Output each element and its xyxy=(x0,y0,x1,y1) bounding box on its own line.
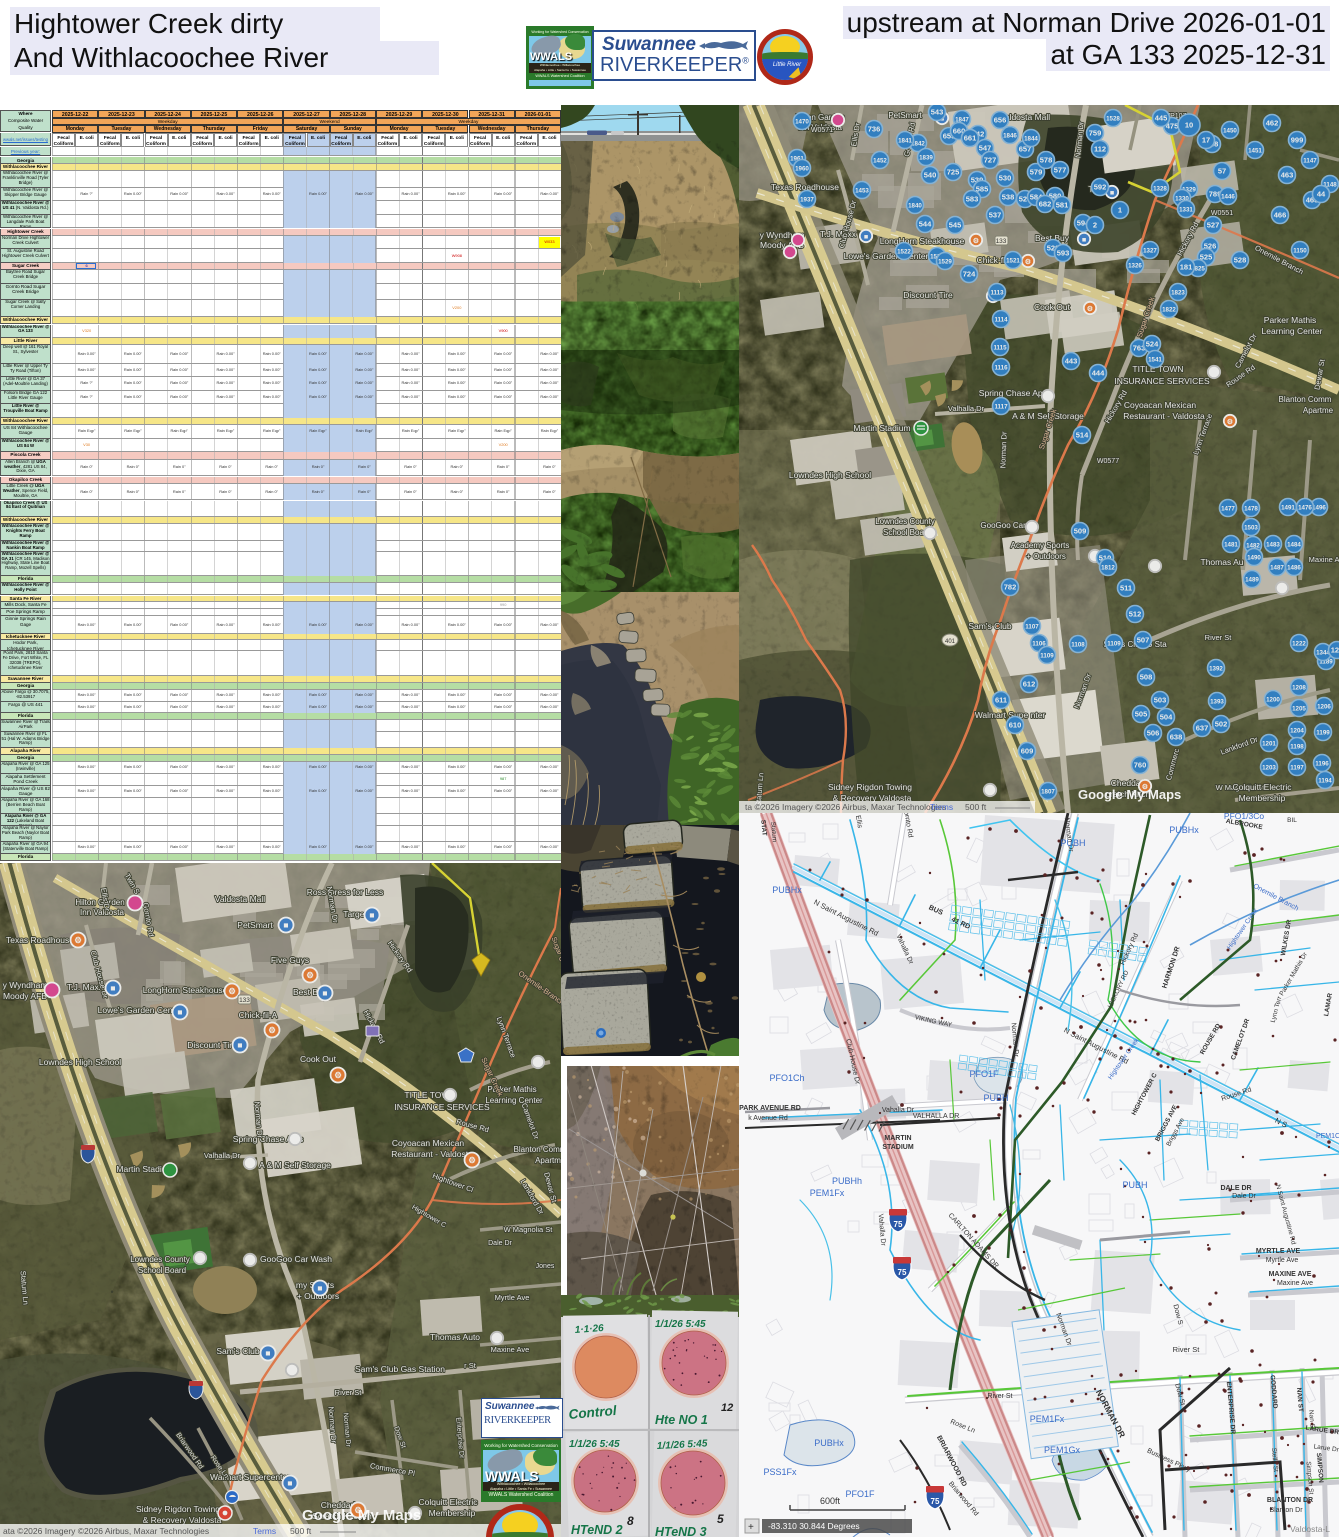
svg-text:Hte NO 1: Hte NO 1 xyxy=(655,1413,708,1427)
svg-text:PUBHh: PUBHh xyxy=(832,1176,862,1186)
svg-text:-83.310 30.844 Degrees: -83.310 30.844 Degrees xyxy=(768,1521,860,1531)
svg-text:Google My Maps: Google My Maps xyxy=(1078,787,1181,802)
svg-text:1/1/26 5:45: 1/1/26 5:45 xyxy=(655,1319,706,1330)
svg-text:STAT: STAT xyxy=(759,820,767,837)
svg-text:500 ft: 500 ft xyxy=(290,1526,312,1536)
svg-text:Terms: Terms xyxy=(253,1526,276,1536)
svg-text:BLANTON DR: BLANTON DR xyxy=(1267,1497,1313,1504)
svg-text:BIL: BIL xyxy=(1287,817,1297,824)
svg-text:k Avenue Rd: k Avenue Rd xyxy=(748,1115,788,1122)
svg-text:STADIUM: STADIUM xyxy=(882,1144,914,1151)
svg-text:500 ft: 500 ft xyxy=(965,802,987,812)
svg-text:Blanton Dr: Blanton Dr xyxy=(1269,1507,1303,1514)
svg-text:PSS1Fx: PSS1Fx xyxy=(763,1467,797,1477)
svg-text:Terms: Terms xyxy=(930,802,953,812)
svg-text:PUBH: PUBH xyxy=(1060,838,1085,848)
svg-text:VALHALLA DR: VALHALLA DR xyxy=(913,1113,960,1120)
svg-text:PFO1F: PFO1F xyxy=(845,1489,875,1499)
svg-text:ata ©2026 Imagery ©2026 Airbus: ata ©2026 Imagery ©2026 Airbus, Maxar Te… xyxy=(3,1526,209,1536)
svg-text:8: 8 xyxy=(627,1514,634,1528)
svg-text:PARK AVENUE RD: PARK AVENUE RD xyxy=(739,1105,801,1112)
svg-text:PFO1Ch: PFO1Ch xyxy=(769,1073,804,1083)
svg-text:1/1/26 5:45: 1/1/26 5:45 xyxy=(569,1439,620,1450)
svg-text:5: 5 xyxy=(717,1512,724,1526)
svg-text:PUBH: PUBH xyxy=(1122,1180,1147,1190)
svg-text:Google My Maps: Google My Maps xyxy=(302,1507,421,1524)
svg-text:PEM1Gx: PEM1Gx xyxy=(1044,1445,1081,1455)
svg-text:PEM1Fx: PEM1Fx xyxy=(1030,1414,1065,1424)
svg-text:PUBH: PUBH xyxy=(983,1093,1008,1103)
svg-text:MYRTLE AVE: MYRTLE AVE xyxy=(1256,1248,1301,1255)
svg-text:MARTIN: MARTIN xyxy=(884,1135,911,1142)
svg-text:ta ©2026 Imagery ©2026 Airbus,: ta ©2026 Imagery ©2026 Airbus, Maxar Tec… xyxy=(745,802,946,812)
svg-text:PUBHx: PUBHx xyxy=(1169,825,1199,835)
svg-text:River St: River St xyxy=(1173,1345,1201,1354)
svg-text:DALE DR: DALE DR xyxy=(1220,1185,1251,1192)
svg-text:HTeND 2: HTeND 2 xyxy=(571,1523,623,1537)
svg-text:HTeND 3: HTeND 3 xyxy=(655,1525,707,1537)
svg-text:75: 75 xyxy=(894,1220,903,1229)
svg-text:75: 75 xyxy=(931,1497,940,1506)
svg-text:PUBHx: PUBHx xyxy=(772,885,802,895)
svg-text:Valdosta-L: Valdosta-L xyxy=(1290,1524,1330,1534)
svg-text:12: 12 xyxy=(721,1402,733,1414)
svg-text:Myrtle Ave: Myrtle Ave xyxy=(1266,1257,1299,1264)
svg-text:PFO1/3Co: PFO1/3Co xyxy=(1224,813,1264,821)
svg-text:PEM1Fx: PEM1Fx xyxy=(810,1188,845,1198)
svg-text:Dale Dr: Dale Dr xyxy=(1232,1193,1256,1200)
svg-text:600ft: 600ft xyxy=(820,1496,841,1506)
svg-text:+: + xyxy=(748,1522,754,1533)
svg-text:Vahalla Dr: Vahalla Dr xyxy=(882,1107,915,1114)
svg-text:75: 75 xyxy=(898,1268,907,1277)
svg-text:River St: River St xyxy=(988,1393,1013,1400)
svg-text:Maxine Ave: Maxine Ave xyxy=(1277,1280,1313,1287)
svg-text:PFO1F: PFO1F xyxy=(969,1069,999,1079)
svg-text:MAXINE AVE: MAXINE AVE xyxy=(1269,1271,1312,1278)
svg-text:1·1·26: 1·1·26 xyxy=(574,1323,604,1336)
svg-text:PUBHx: PUBHx xyxy=(814,1438,844,1448)
svg-text:PEM1C: PEM1C xyxy=(1316,1133,1339,1140)
